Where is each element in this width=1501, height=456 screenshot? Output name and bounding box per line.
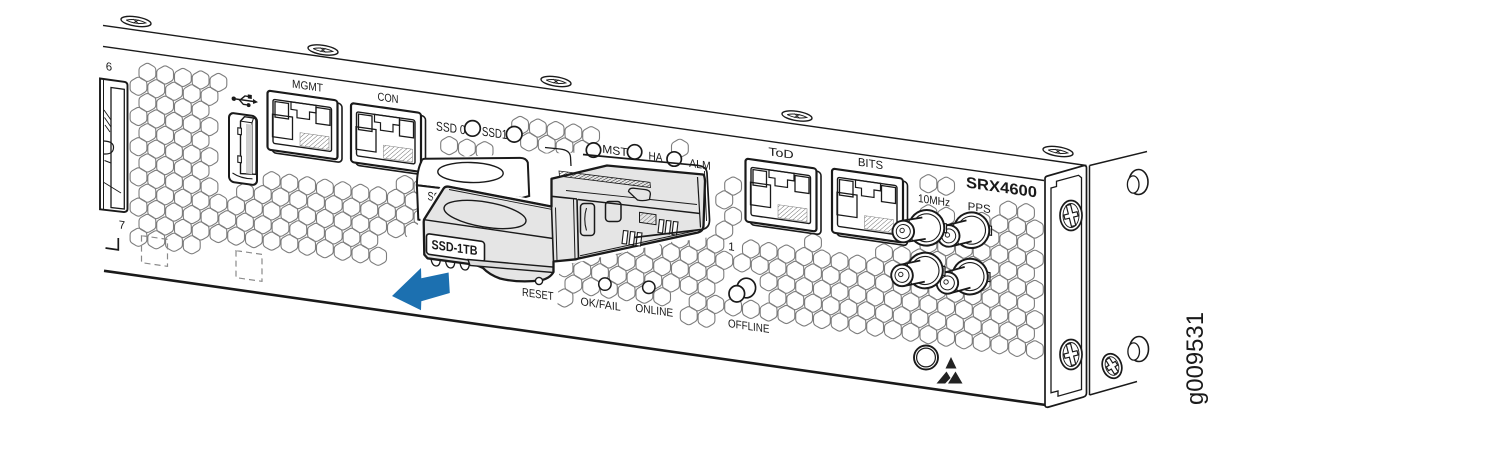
svg-text:7: 7 <box>119 219 125 232</box>
svg-text:6: 6 <box>106 61 112 74</box>
svg-text:1: 1 <box>728 241 734 254</box>
svg-text:g009531: g009531 <box>1182 312 1209 405</box>
